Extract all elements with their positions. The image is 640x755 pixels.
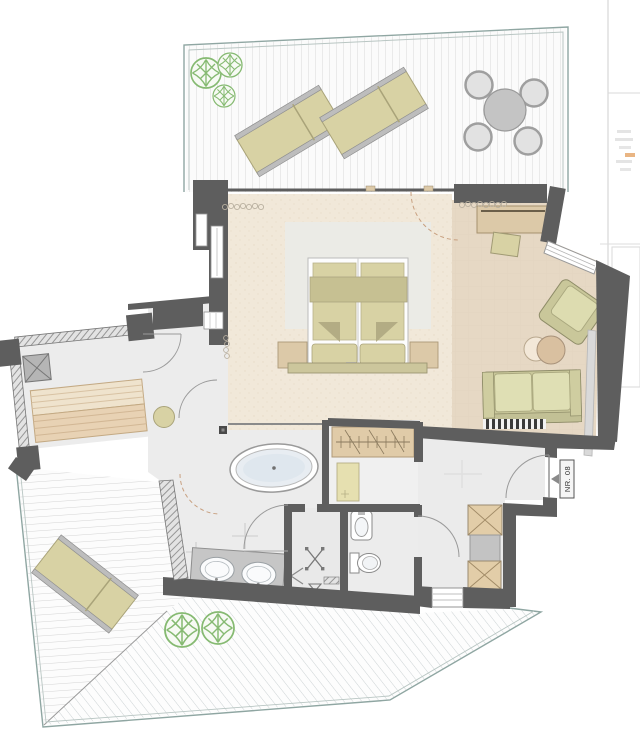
tree-icon — [191, 58, 221, 88]
floor-plan-page: NR. 08 — [0, 0, 640, 755]
round-table — [484, 89, 526, 131]
wall-shaft — [196, 214, 207, 246]
sofa — [482, 370, 581, 425]
outdoor-chair — [466, 72, 493, 99]
coffee-tables — [524, 336, 565, 364]
toilet — [350, 553, 381, 573]
floor-plan: NR. 08 — [0, 0, 640, 755]
closet-shelf — [337, 463, 359, 501]
sauna-bench — [30, 379, 147, 442]
outdoor-chair — [515, 128, 542, 155]
terrace-upper — [184, 27, 568, 192]
wall-cabinet — [204, 312, 223, 329]
wardrobe-rail — [332, 427, 414, 457]
tree-icon — [218, 53, 242, 77]
desk-chair — [491, 232, 521, 257]
stool — [154, 407, 175, 428]
window-south — [432, 588, 463, 607]
floor-drain-icon — [219, 426, 227, 434]
door-handle — [366, 186, 375, 191]
map-legend-fragment — [615, 130, 635, 171]
striped-rug — [483, 419, 546, 429]
tree-icon — [165, 613, 199, 647]
wall-north-lounge — [454, 184, 547, 203]
room-number-label: NR. 08 — [551, 460, 574, 498]
bed-runner — [310, 277, 407, 302]
bedroom — [278, 222, 438, 373]
entry-built-in-closet — [468, 505, 502, 589]
tree-icon — [213, 85, 235, 107]
tree-icon — [202, 612, 234, 644]
double-bed — [308, 258, 408, 369]
sauna-heater — [23, 354, 52, 383]
room-number-text: NR. 08 — [563, 466, 572, 492]
radiator — [211, 226, 223, 278]
sauna — [0, 313, 167, 473]
door-handle — [424, 186, 433, 191]
bed-headboard — [288, 363, 427, 373]
wall-east — [596, 260, 630, 442]
outdoor-chair — [465, 124, 492, 151]
pillow — [360, 344, 405, 364]
hand-basin — [351, 511, 372, 540]
desk — [477, 206, 548, 233]
shower-threshold — [324, 577, 339, 584]
shower-floor — [288, 508, 340, 600]
pillow — [312, 344, 357, 364]
label-arrow-icon — [551, 474, 559, 484]
